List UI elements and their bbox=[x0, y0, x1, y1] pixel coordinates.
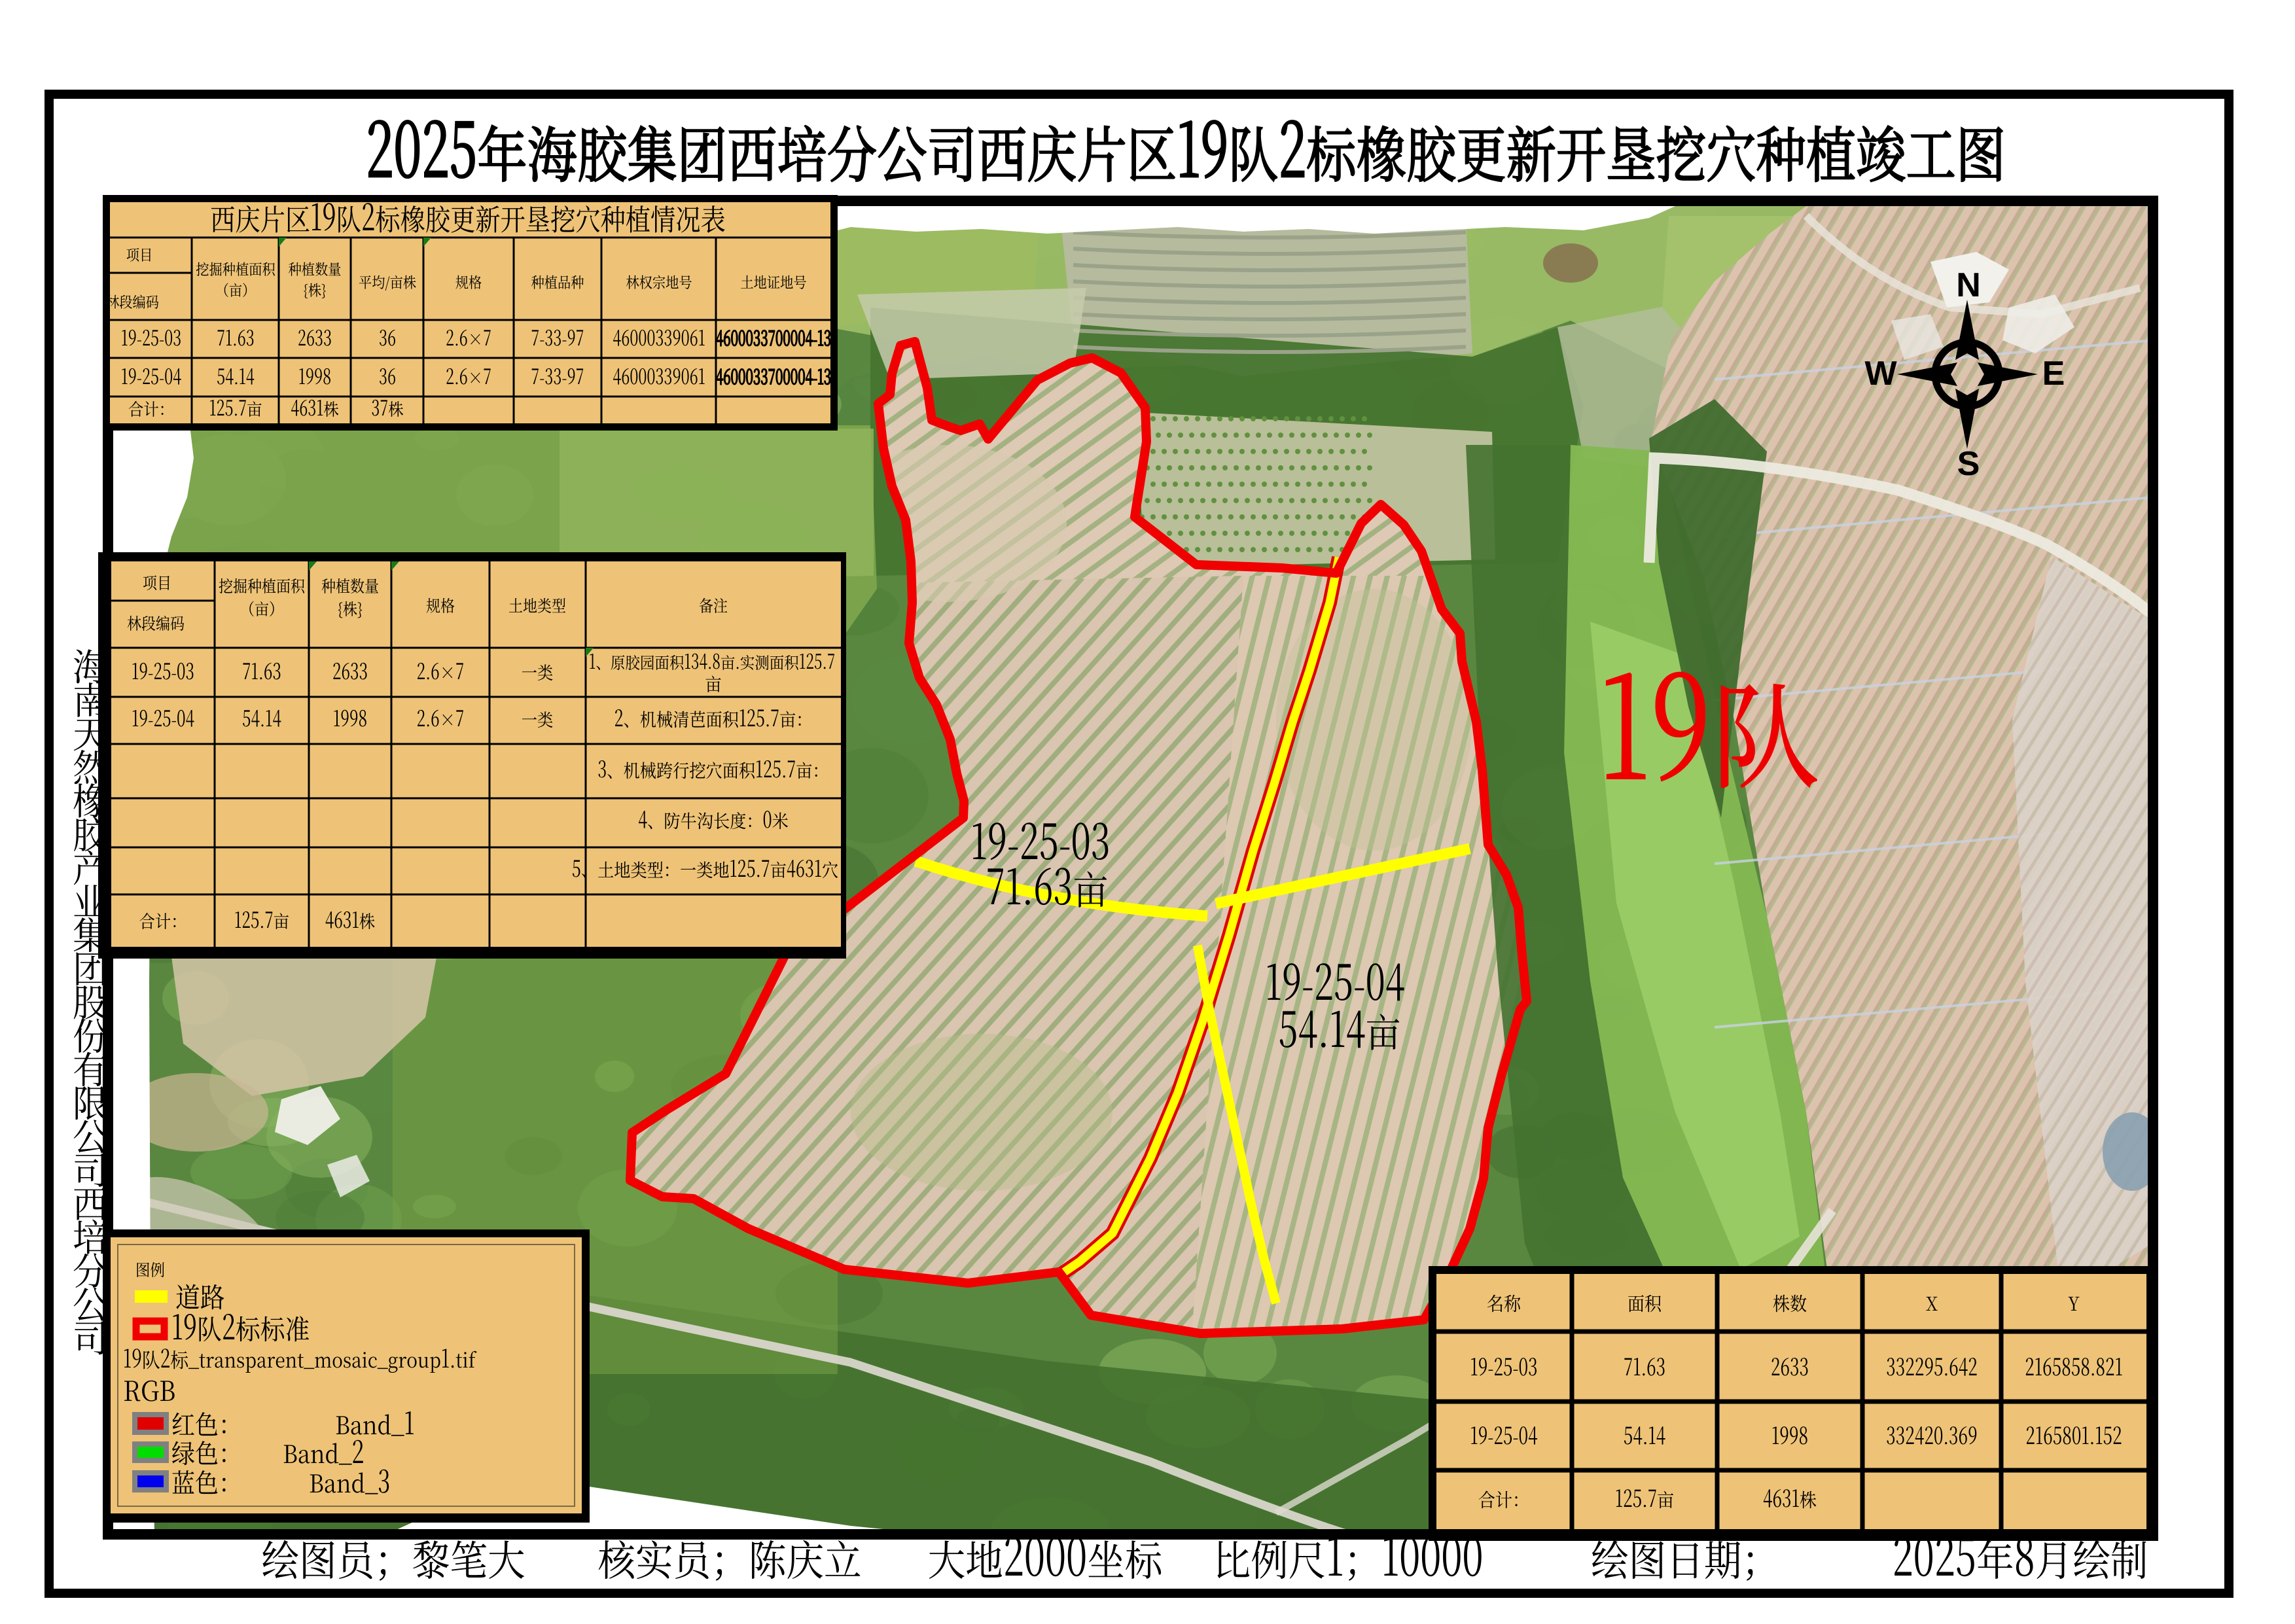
svg-text:S: S bbox=[1957, 445, 1980, 483]
svg-text:N: N bbox=[1956, 266, 1981, 304]
svg-text:E: E bbox=[2042, 355, 2065, 393]
svg-text:W: W bbox=[1864, 355, 1897, 393]
